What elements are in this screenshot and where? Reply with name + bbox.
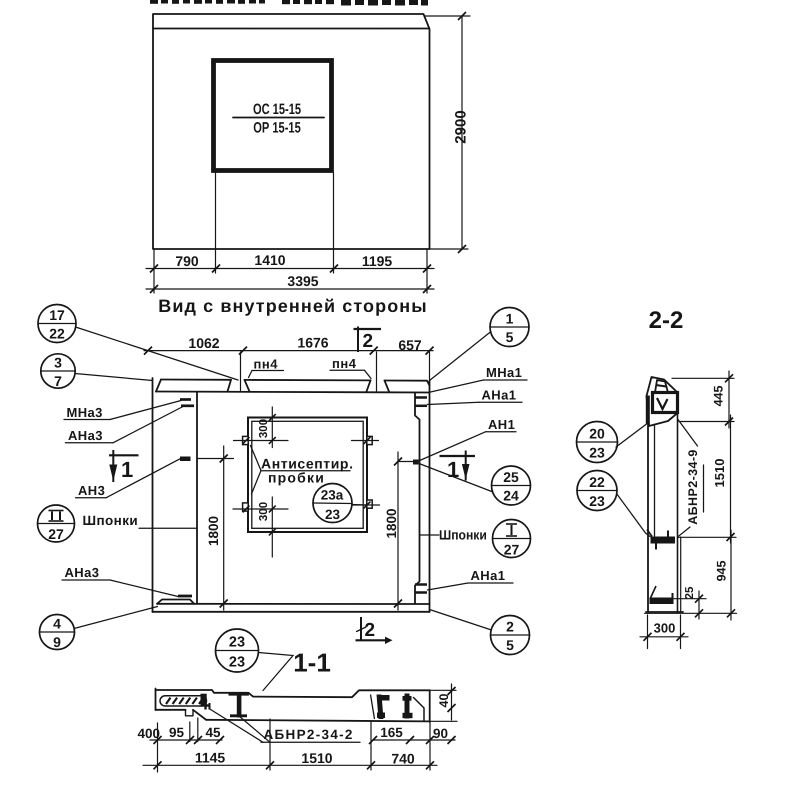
svg-text:1676: 1676 — [297, 335, 328, 351]
svg-text:300: 300 — [654, 621, 676, 636]
svg-text:АНа1: АНа1 — [482, 388, 517, 403]
svg-text:1195: 1195 — [362, 253, 393, 269]
svg-text:АНа3: АНа3 — [65, 565, 100, 580]
svg-text:45: 45 — [205, 725, 221, 740]
svg-text:1: 1 — [121, 457, 133, 482]
svg-text:2: 2 — [506, 619, 514, 635]
svg-text:1510: 1510 — [301, 750, 332, 766]
svg-text:400: 400 — [138, 726, 161, 741]
svg-text:1510: 1510 — [712, 459, 727, 488]
svg-text:22: 22 — [589, 474, 605, 490]
svg-text:27: 27 — [48, 526, 64, 542]
svg-text:95: 95 — [169, 725, 185, 740]
svg-text:АНа1: АНа1 — [471, 568, 506, 583]
svg-text:740: 740 — [391, 751, 415, 767]
svg-text:2: 2 — [365, 620, 376, 641]
svg-text:2-2: 2-2 — [649, 307, 684, 334]
svg-text:945: 945 — [715, 561, 729, 582]
svg-text:657: 657 — [398, 337, 422, 353]
svg-text:9: 9 — [53, 634, 61, 650]
svg-text:1-1: 1-1 — [293, 648, 331, 678]
svg-text:20: 20 — [589, 426, 605, 442]
svg-text:5: 5 — [506, 637, 514, 653]
svg-text:1410: 1410 — [254, 252, 285, 268]
svg-text:27: 27 — [504, 542, 520, 558]
svg-text:Шпонки: Шпонки — [439, 528, 487, 543]
svg-text:АБНР2-34-2: АБНР2-34-2 — [264, 727, 354, 742]
svg-text:445: 445 — [712, 386, 726, 407]
svg-text:пн4: пн4 — [332, 356, 357, 371]
svg-text:Шпонки: Шпонки — [83, 513, 139, 528]
svg-text:АН3: АН3 — [78, 483, 105, 498]
svg-text:1: 1 — [506, 311, 514, 327]
svg-text:23: 23 — [229, 655, 245, 671]
svg-text:17: 17 — [49, 307, 65, 323]
svg-text:22: 22 — [49, 326, 65, 342]
svg-text:АБНР2-34-9: АБНР2-34-9 — [686, 449, 700, 525]
svg-text:1145: 1145 — [195, 750, 226, 766]
svg-text:МНа3: МНа3 — [67, 405, 103, 420]
svg-text:1800: 1800 — [206, 516, 221, 546]
svg-text:1800: 1800 — [384, 508, 399, 538]
svg-text:пробки: пробки — [268, 470, 325, 486]
svg-text:4: 4 — [53, 616, 61, 632]
svg-text:25: 25 — [684, 586, 696, 599]
svg-text:7: 7 — [54, 373, 62, 389]
svg-text:23а: 23а — [321, 488, 344, 503]
svg-text:5: 5 — [506, 329, 514, 345]
svg-text:АН1: АН1 — [488, 417, 515, 432]
svg-text:300: 300 — [258, 419, 270, 438]
svg-text:3395: 3395 — [287, 273, 318, 289]
svg-text:90: 90 — [433, 726, 448, 741]
svg-text:3: 3 — [54, 355, 62, 371]
svg-text:300: 300 — [258, 502, 270, 521]
svg-text:23: 23 — [589, 493, 605, 509]
svg-text:23: 23 — [229, 635, 245, 651]
svg-text:АНа3: АНа3 — [68, 428, 103, 443]
svg-text:165: 165 — [380, 725, 403, 740]
svg-text:ОС 15-15: ОС 15-15 — [253, 101, 301, 118]
svg-text:23: 23 — [325, 507, 341, 522]
svg-text:Вид с внутренней стороны: Вид с внутренней стороны — [158, 296, 428, 316]
svg-text:25: 25 — [503, 469, 519, 485]
svg-text:2: 2 — [363, 331, 374, 352]
svg-text:24: 24 — [503, 488, 519, 504]
svg-text:40: 40 — [437, 694, 451, 708]
svg-text:МНа1: МНа1 — [486, 365, 522, 380]
svg-text:пн4: пн4 — [254, 357, 279, 372]
svg-text:790: 790 — [175, 253, 199, 269]
svg-text:1062: 1062 — [188, 335, 219, 351]
svg-text:23: 23 — [589, 445, 605, 461]
svg-text:ОР 15-15: ОР 15-15 — [253, 120, 301, 137]
svg-text:2900: 2900 — [453, 110, 470, 143]
